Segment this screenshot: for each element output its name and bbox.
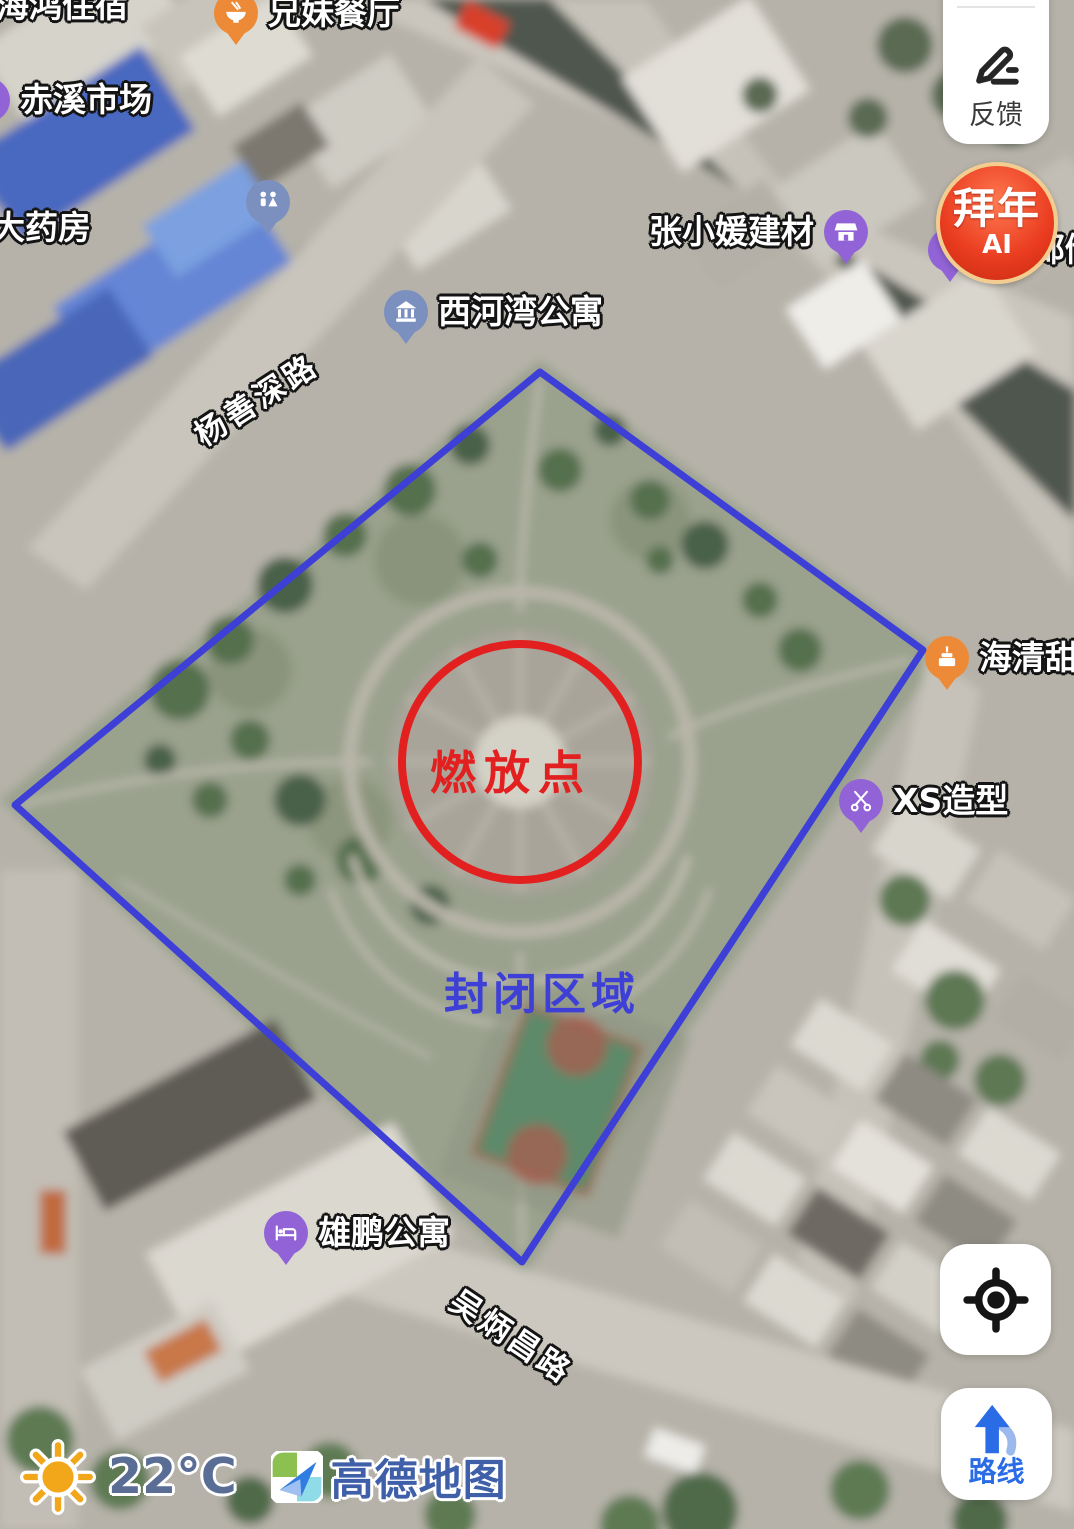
temperature-label: 22°C	[108, 1448, 237, 1505]
feedback-label: 反馈	[969, 93, 1023, 132]
poi-restroom[interactable]	[246, 180, 290, 224]
restaurant-pin	[214, 0, 258, 35]
building-pin	[384, 290, 428, 334]
bed-icon	[273, 1220, 299, 1246]
poi-chixi-market[interactable]: 赤溪市场	[0, 78, 152, 122]
shop-pin	[824, 210, 868, 254]
restroom-pin	[246, 180, 290, 224]
amap-logo-icon	[271, 1451, 323, 1503]
scissors-icon	[848, 788, 874, 814]
divider	[957, 6, 1035, 8]
poi-label-haihong-lodging[interactable]: 海鸿住宿	[0, 0, 128, 28]
poi-label-pharmacy[interactable]: 大药房	[0, 206, 91, 250]
sun-icon	[20, 1439, 96, 1515]
closed-area-label: 封闭区域	[444, 958, 640, 1022]
restaurant-icon	[223, 0, 249, 26]
crosshair-icon	[959, 1263, 1033, 1337]
market-pin	[0, 78, 10, 122]
amap-watermark: 高德地图	[271, 1446, 507, 1508]
route-label: 路线	[968, 1457, 1024, 1487]
burn-point-label: 燃放点	[430, 737, 592, 803]
amap-logo-text: 高德地图	[331, 1446, 507, 1508]
cake-pin	[925, 636, 969, 680]
poi-xihewan-apartment[interactable]: 西河湾公寓	[384, 290, 603, 334]
poi-xiongpeng-apartment[interactable]: 雄鹏公寓	[264, 1211, 450, 1255]
poi-zhangxiaoyuan-building-materials[interactable]: 张小媛建材	[649, 210, 868, 254]
bed-pin	[264, 1211, 308, 1255]
poi-xiongmei-restaurant[interactable]: 兄妹餐厅	[214, 0, 400, 35]
restroom-icon	[255, 189, 281, 215]
locate-button[interactable]	[940, 1244, 1051, 1355]
navigation-arrow-icon	[966, 1401, 1028, 1459]
poi-xs-hair-salon[interactable]: XS造型	[839, 779, 1008, 823]
new-year-ai-badge[interactable]: 拜年 AI	[936, 162, 1058, 284]
feedback-button[interactable]: 反馈	[943, 0, 1049, 144]
market-icon	[0, 87, 1, 113]
cake-icon	[934, 645, 960, 671]
poi-haiqing-dessert[interactable]: 海清甜品	[925, 636, 1074, 680]
map-canvas[interactable]: 燃放点 封闭区域 杨善深路 吴炳昌路 海鸿住宿 兄妹餐厅 赤溪市场 大药房	[0, 0, 1074, 1529]
badge-title: 拜年	[953, 187, 1041, 231]
badge-subtitle: AI	[982, 231, 1012, 259]
shop-icon	[833, 219, 859, 245]
route-button[interactable]: 路线	[941, 1388, 1052, 1500]
scissors-pin	[839, 779, 883, 823]
pencil-icon	[968, 35, 1024, 91]
building-icon	[393, 299, 419, 325]
